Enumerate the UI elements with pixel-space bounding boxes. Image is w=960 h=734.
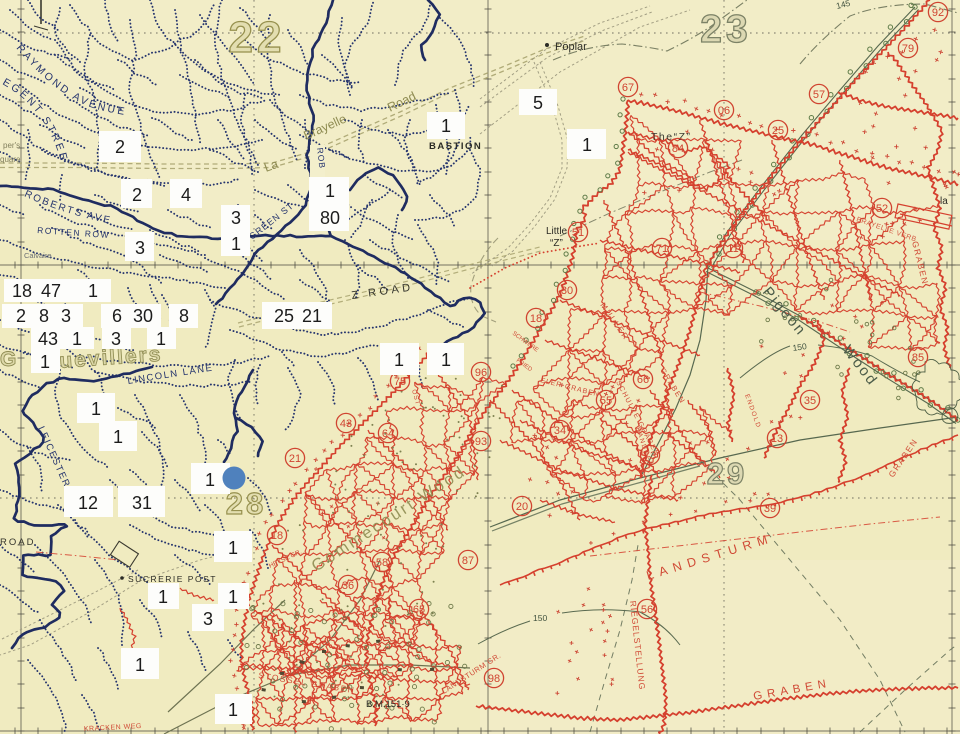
svg-text:5: 5 [533, 93, 543, 113]
svg-text:85: 85 [912, 352, 924, 364]
svg-text:quare: quare [0, 155, 21, 164]
svg-text:73: 73 [644, 450, 656, 462]
svg-text:55: 55 [600, 395, 612, 407]
svg-text:96: 96 [475, 367, 487, 379]
svg-text:Calvaire: Calvaire [24, 251, 52, 260]
svg-text:3: 3 [61, 306, 71, 326]
svg-text:23: 23 [700, 8, 751, 51]
svg-text:22: 22 [229, 13, 286, 62]
svg-text:30: 30 [133, 306, 153, 326]
svg-text:1: 1 [228, 538, 238, 558]
svg-text:1: 1 [394, 350, 404, 370]
svg-text:2: 2 [16, 306, 26, 326]
svg-text:43: 43 [340, 418, 352, 430]
svg-text:98: 98 [488, 673, 500, 685]
svg-text:30: 30 [561, 285, 573, 297]
svg-text:150: 150 [792, 341, 808, 353]
svg-text:per's: per's [3, 141, 20, 150]
svg-text:56: 56 [641, 604, 653, 616]
svg-text:34: 34 [554, 425, 566, 437]
svg-text:1: 1 [158, 587, 168, 607]
svg-text:8: 8 [179, 306, 189, 326]
svg-text:39: 39 [764, 503, 776, 515]
svg-text:87: 87 [462, 555, 474, 567]
svg-text:58: 58 [376, 557, 388, 569]
svg-text:1: 1 [40, 352, 50, 372]
svg-text:21: 21 [289, 453, 301, 465]
svg-text:66: 66 [637, 374, 649, 386]
svg-text:“Z”: “Z” [550, 238, 563, 249]
svg-text:1: 1 [441, 350, 451, 370]
svg-text:06: 06 [718, 105, 730, 117]
svg-text:65: 65 [413, 604, 425, 616]
svg-text:93: 93 [475, 436, 487, 448]
svg-text:1: 1 [156, 329, 166, 349]
svg-text:12: 12 [78, 493, 98, 513]
svg-text:1: 1 [228, 700, 238, 720]
svg-text:92: 92 [932, 7, 944, 19]
svg-text:18: 18 [271, 530, 283, 542]
svg-text:18: 18 [530, 313, 542, 325]
svg-text:11: 11 [727, 243, 738, 255]
svg-text:47: 47 [41, 281, 61, 301]
svg-text:B.M.151·9: B.M.151·9 [366, 699, 410, 710]
svg-text:3: 3 [231, 208, 241, 228]
svg-text:80: 80 [320, 208, 340, 228]
svg-text:1: 1 [582, 135, 592, 155]
svg-text:Little: Little [546, 226, 568, 237]
svg-text:8: 8 [39, 306, 49, 326]
svg-text:13: 13 [771, 433, 783, 445]
svg-text:1: 1 [441, 116, 451, 136]
svg-text:1: 1 [231, 234, 241, 254]
svg-text:31: 31 [132, 493, 152, 513]
svg-text:57: 57 [813, 89, 825, 101]
svg-text:43: 43 [38, 329, 58, 349]
svg-text:150: 150 [533, 613, 547, 623]
svg-text:1: 1 [228, 587, 238, 607]
svg-text:67: 67 [622, 82, 634, 94]
svg-text:28: 28 [226, 486, 266, 521]
svg-text:18: 18 [12, 281, 32, 301]
svg-text:84: 84 [672, 143, 684, 155]
svg-text:20: 20 [516, 501, 528, 513]
svg-text:ROAD: ROAD [0, 537, 35, 548]
svg-text:64: 64 [382, 428, 394, 440]
svg-text:SUCRERIE POST: SUCRERIE POST [128, 574, 217, 584]
svg-text:71: 71 [656, 243, 668, 255]
svg-text:3: 3 [135, 238, 145, 258]
svg-text:3: 3 [111, 329, 121, 349]
svg-text:1: 1 [325, 181, 335, 201]
svg-text:4: 4 [181, 185, 191, 205]
svg-text:75: 75 [394, 376, 406, 388]
svg-text:3: 3 [203, 609, 213, 629]
svg-text:1: 1 [91, 399, 101, 419]
svg-text:51: 51 [572, 227, 584, 239]
svg-text:2: 2 [132, 185, 142, 205]
svg-text:1: 1 [113, 427, 123, 447]
svg-text:1: 1 [88, 281, 98, 301]
svg-text:25: 25 [274, 306, 294, 326]
svg-text:2: 2 [115, 137, 125, 157]
svg-text:1: 1 [72, 329, 82, 349]
svg-text:6: 6 [112, 306, 122, 326]
svg-text:Poplar: Poplar [555, 41, 587, 53]
svg-text:la: la [940, 196, 948, 207]
svg-text:G: G [0, 348, 16, 371]
svg-text:35: 35 [804, 395, 816, 407]
svg-text:21: 21 [302, 306, 322, 326]
svg-text:52: 52 [876, 203, 888, 215]
svg-text:BASTION: BASTION [429, 141, 482, 152]
svg-text:25: 25 [772, 125, 784, 137]
svg-text:36: 36 [342, 580, 354, 592]
svg-text:1: 1 [205, 470, 215, 490]
svg-text:1: 1 [135, 655, 145, 675]
svg-text:29: 29 [707, 456, 747, 491]
svg-text:79: 79 [902, 43, 914, 55]
